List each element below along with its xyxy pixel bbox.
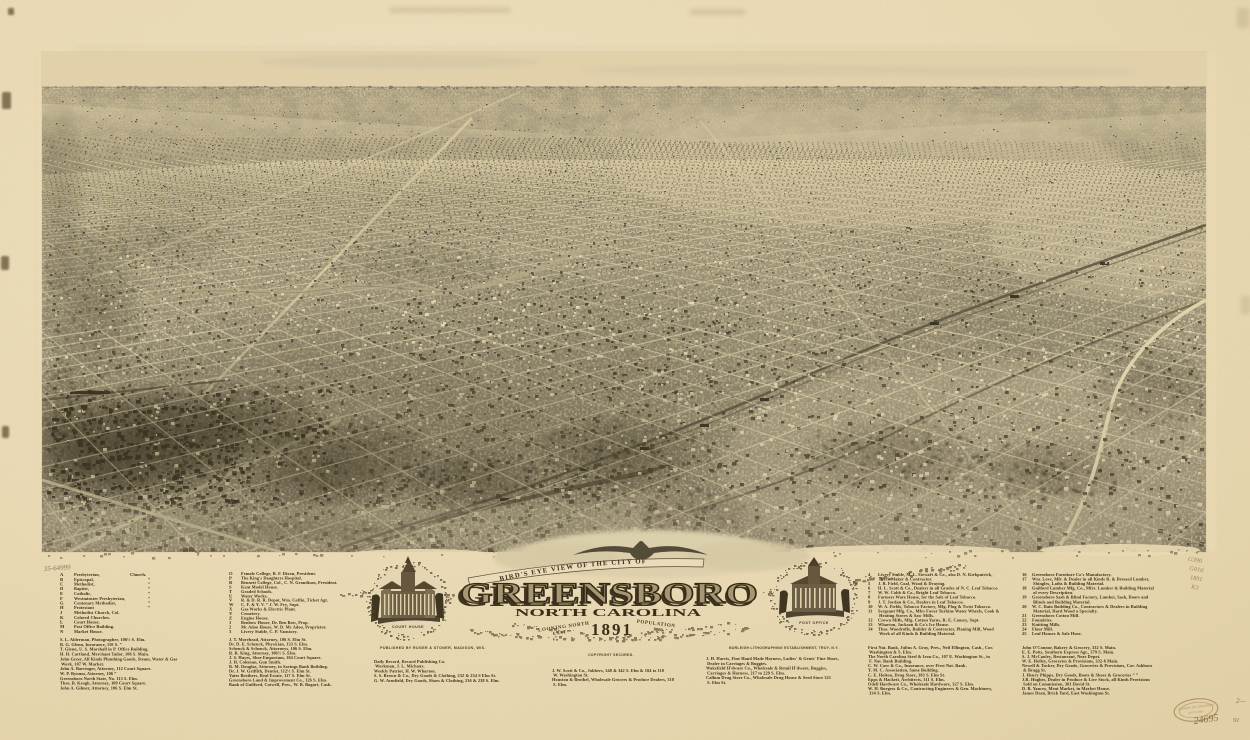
svg-text:Female College, B. F. Dixon, P: Female College, B. F. Dixon, President.T… [241,571,337,634]
svg-text:Church.: Church. [130,572,146,577]
svg-text:GREENSBORO: GREENSBORO [460,577,758,610]
svg-text:BURLEIGH LITHOGRAPHING ESTABLI: BURLEIGH LITHOGRAPHING ESTABLISHMENT, TR… [729,646,839,650]
svg-text:K3: K3 [1190,583,1199,591]
svg-text:COPYRIGHT SECURED.: COPYRIGHT SECURED. [588,653,634,657]
svg-text:2—: 2— [1236,697,1247,705]
svg-text:91: 91 [1233,717,1240,724]
svg-text:POST OFFICE: POST OFFICE [799,621,829,625]
svg-text:”””””””: ””””””” [148,577,150,610]
svg-text:COURT HOUSE: COURT HOUSE [392,625,424,629]
svg-text:NORTH CAROLINA: NORTH CAROLINA [515,608,703,619]
svg-text:PUBLISHED BY RUGER & STONER, M: PUBLISHED BY RUGER & STONER, MADISON, WI… [380,646,486,650]
